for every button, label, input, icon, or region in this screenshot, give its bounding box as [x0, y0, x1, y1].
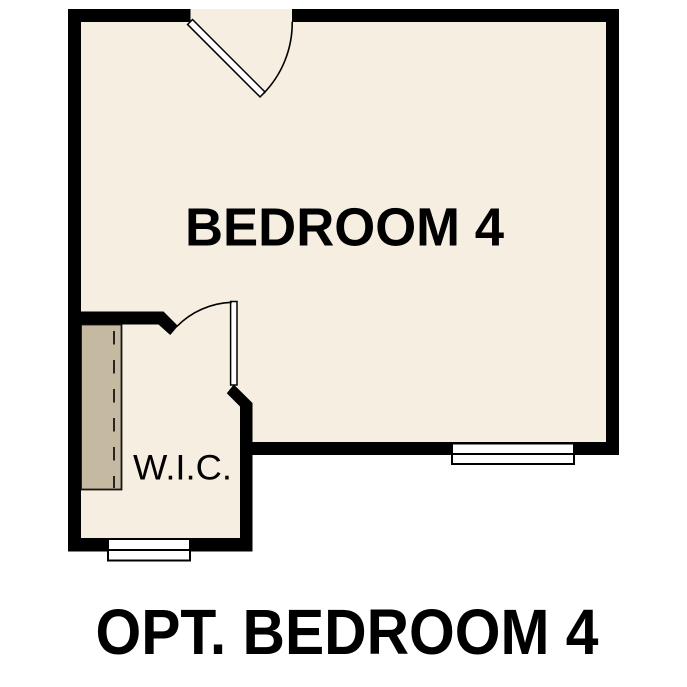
svg-text:OPT. BEDROOM 4: OPT. BEDROOM 4 [96, 596, 599, 668]
svg-text:W.I.C.: W.I.C. [133, 448, 232, 488]
svg-text:BEDROOM 4: BEDROOM 4 [185, 199, 504, 258]
